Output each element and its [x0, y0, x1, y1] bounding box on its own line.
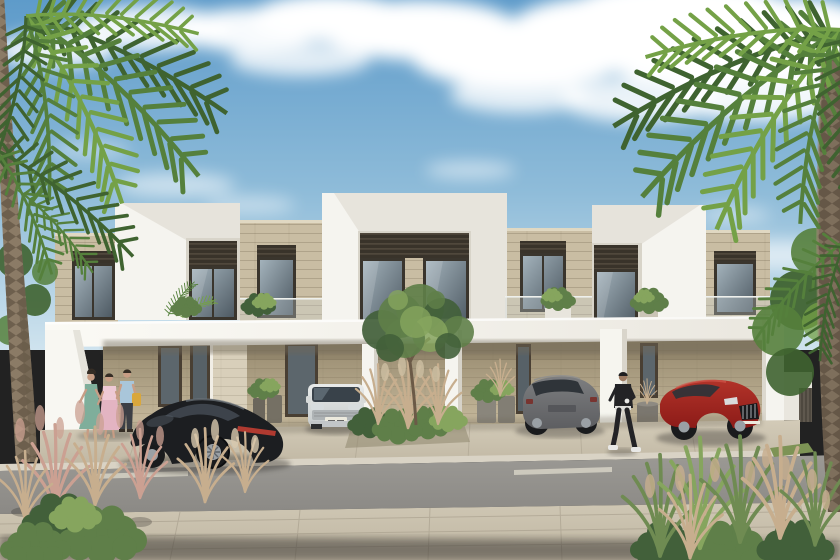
louver-band: [594, 245, 638, 269]
rendered-image: [0, 0, 840, 560]
louver-band: [189, 241, 237, 266]
louver-band: [360, 233, 469, 258]
grille: [739, 403, 759, 420]
grey-suv: [523, 376, 600, 435]
townhouse-render: [0, 0, 840, 560]
yellow-bag: [132, 393, 141, 406]
